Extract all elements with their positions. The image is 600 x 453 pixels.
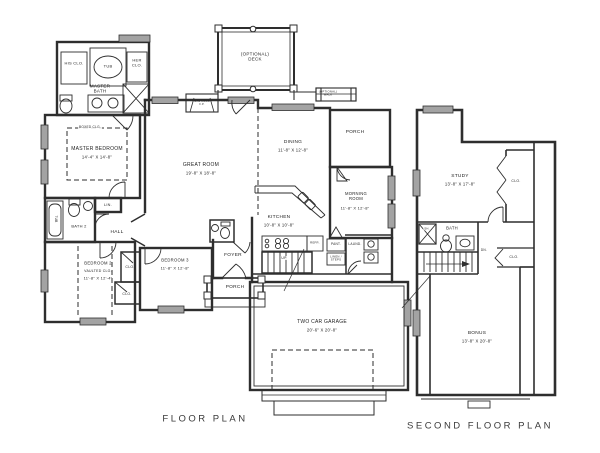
label-stairs-up: UP	[280, 256, 287, 260]
label-garage: TWO CAR GARAGE	[297, 320, 347, 326]
second-floor-base-details	[421, 399, 530, 408]
label-her-closet: HER CLO.	[127, 58, 147, 67]
label-great-room: GREAT ROOM	[183, 163, 219, 169]
label-bath-second-floor: BATH	[446, 227, 458, 232]
label-bedroom2-ceiling: VAULTED CLG.	[84, 269, 112, 273]
floorplan-page: HIS CLO. TUB HER CLO. MASTER BATH MASTER…	[0, 0, 600, 453]
label-garage-dims: 20'-6" X 20'-8"	[307, 329, 337, 334]
label-pantry: PANT.	[331, 243, 341, 247]
second-floor-doors	[488, 156, 506, 266]
optional-deck-outline	[215, 25, 316, 100]
label-linen-steps: LINEN / STEPS	[328, 256, 345, 263]
label-master-bedroom-dims: 14'-4" X 14'-8"	[82, 156, 112, 161]
label-bedroom2: BEDROOM 2	[84, 262, 111, 267]
label-bonus: BONUS	[468, 331, 486, 337]
label-fireplace: GAS LOGS F.P.	[193, 100, 211, 106]
label-bedroom3: BEDROOM 3	[161, 259, 188, 264]
label-linen-closet: LIN.	[104, 203, 112, 207]
label-master-tub: TUB	[104, 65, 113, 70]
label-bath2: BATH 2	[71, 225, 86, 230]
label-closet-a: CLO.	[125, 265, 134, 269]
label-dining-dims: 11'-8" X 12'-8"	[278, 149, 308, 154]
label-study-dims: 13'-8" X 17'-8"	[445, 183, 475, 188]
label-master-bedroom-ceiling: BOXED CLG.	[78, 126, 102, 130]
label-hall-closet: CLO.	[509, 255, 518, 259]
label-hall: HALL	[111, 230, 124, 236]
label-rear-porch: PORCH	[346, 130, 365, 136]
label-study-closet: CLO.	[511, 179, 520, 183]
label-dining: DINING	[284, 140, 302, 146]
label-morning-room: MORNING ROOM	[340, 192, 372, 202]
label-study: STUDY	[451, 174, 469, 180]
label-front-porch: PORCH	[226, 285, 245, 291]
label-optional-deck: (OPTIONAL) DECK	[234, 52, 276, 63]
label-foyer: FOYER	[224, 253, 242, 259]
label-optional-walk: (OPTIONAL) WALK	[317, 91, 339, 98]
powder-room-fixtures	[212, 222, 231, 239]
label-closet-b: CLO.	[122, 292, 131, 296]
label-his-closet: HIS CLO.	[64, 62, 84, 67]
caption-second-floor-plan: SECOND FLOOR PLAN	[407, 421, 553, 432]
label-bedroom3-dims: 11'-8" X 12'-8"	[161, 267, 190, 272]
label-bedroom2-dims: 11'-8" X 12'-4"	[84, 277, 113, 282]
label-great-room-dims: 19'-8" X 18'-8"	[186, 172, 216, 177]
label-laundry: LAUND.	[348, 243, 361, 247]
label-master-bedroom: MASTER BEDROOM	[71, 147, 123, 153]
label-bonus-dims: 13'-8" X 20'-8"	[462, 340, 492, 345]
label-kitchen-dims: 10'-8" X 10'-8"	[264, 224, 294, 229]
caption-floor-plan: FLOOR PLAN	[162, 414, 247, 425]
label-morning-room-dims: 11'-8" X 12'-8"	[341, 207, 370, 212]
label-master-bath: MASTER BATH	[83, 84, 117, 95]
staircase-second-floor	[402, 252, 472, 308]
label-shower: SH.	[423, 227, 430, 230]
label-stairs-down: DN.	[481, 249, 487, 253]
label-kitchen: KITCHEN	[268, 215, 291, 221]
label-bath2-tub: TUB	[53, 215, 57, 222]
second-floor-windows	[413, 106, 453, 336]
floorplan-svg	[0, 0, 600, 453]
label-refrigerator: REFR.	[310, 241, 320, 244]
